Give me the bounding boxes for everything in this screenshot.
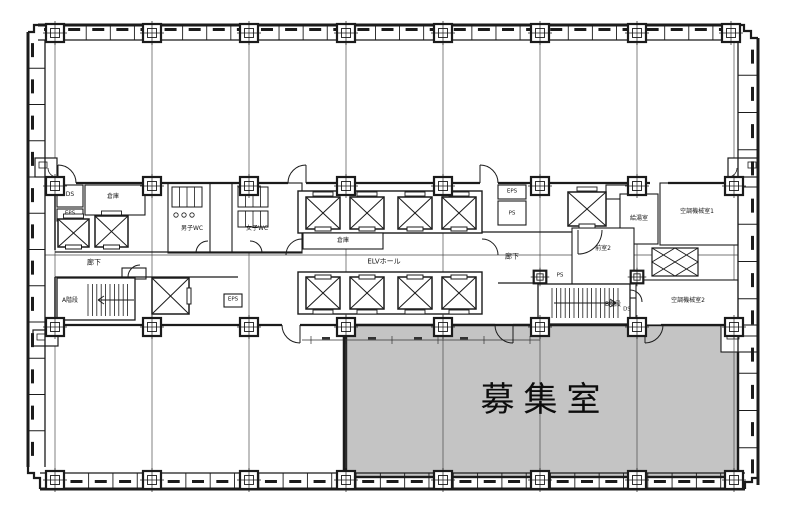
floor-plan: 募集室 ELVホール 廊下 廊下 A階段 B階段 前室2 倉庫 倉庫 DS EP… <box>0 0 787 517</box>
floor-plan-drawing <box>0 0 787 517</box>
